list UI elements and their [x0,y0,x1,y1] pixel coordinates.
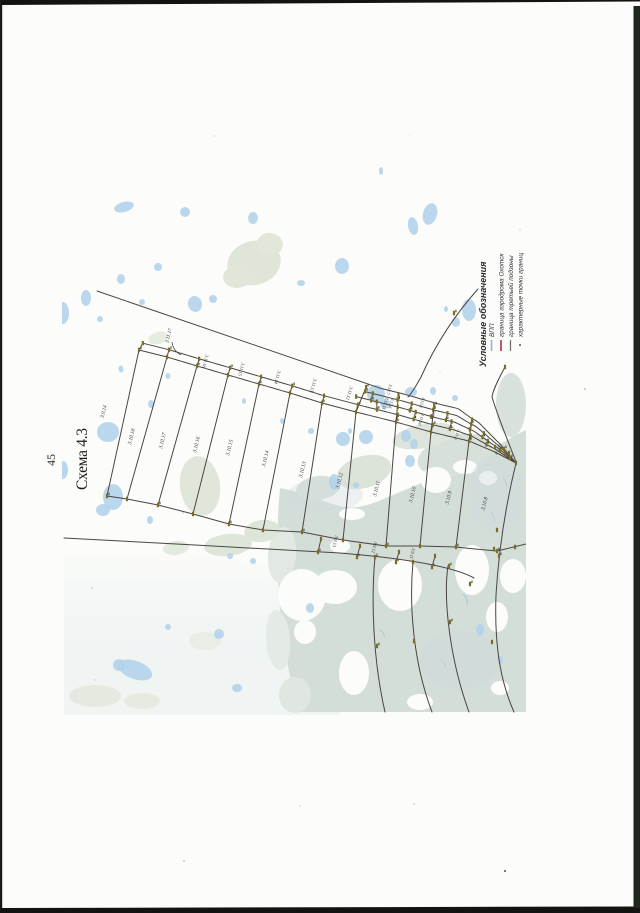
svg-text:Схема 4.3: Схема 4.3 [74,428,91,490]
svg-text:45: 45 [44,454,58,466]
svg-text:граница аэродрома Охотск: граница аэродрома Охотск [498,253,506,337]
svg-text:граница третьей подзоны: граница третьей подзоны [507,255,515,337]
svg-text:характерные точки границ: характерные точки границ [518,253,525,338]
svg-text:ВПП: ВПП [489,323,496,337]
svg-text:Условные обозначения: Условные обозначения [478,261,488,367]
